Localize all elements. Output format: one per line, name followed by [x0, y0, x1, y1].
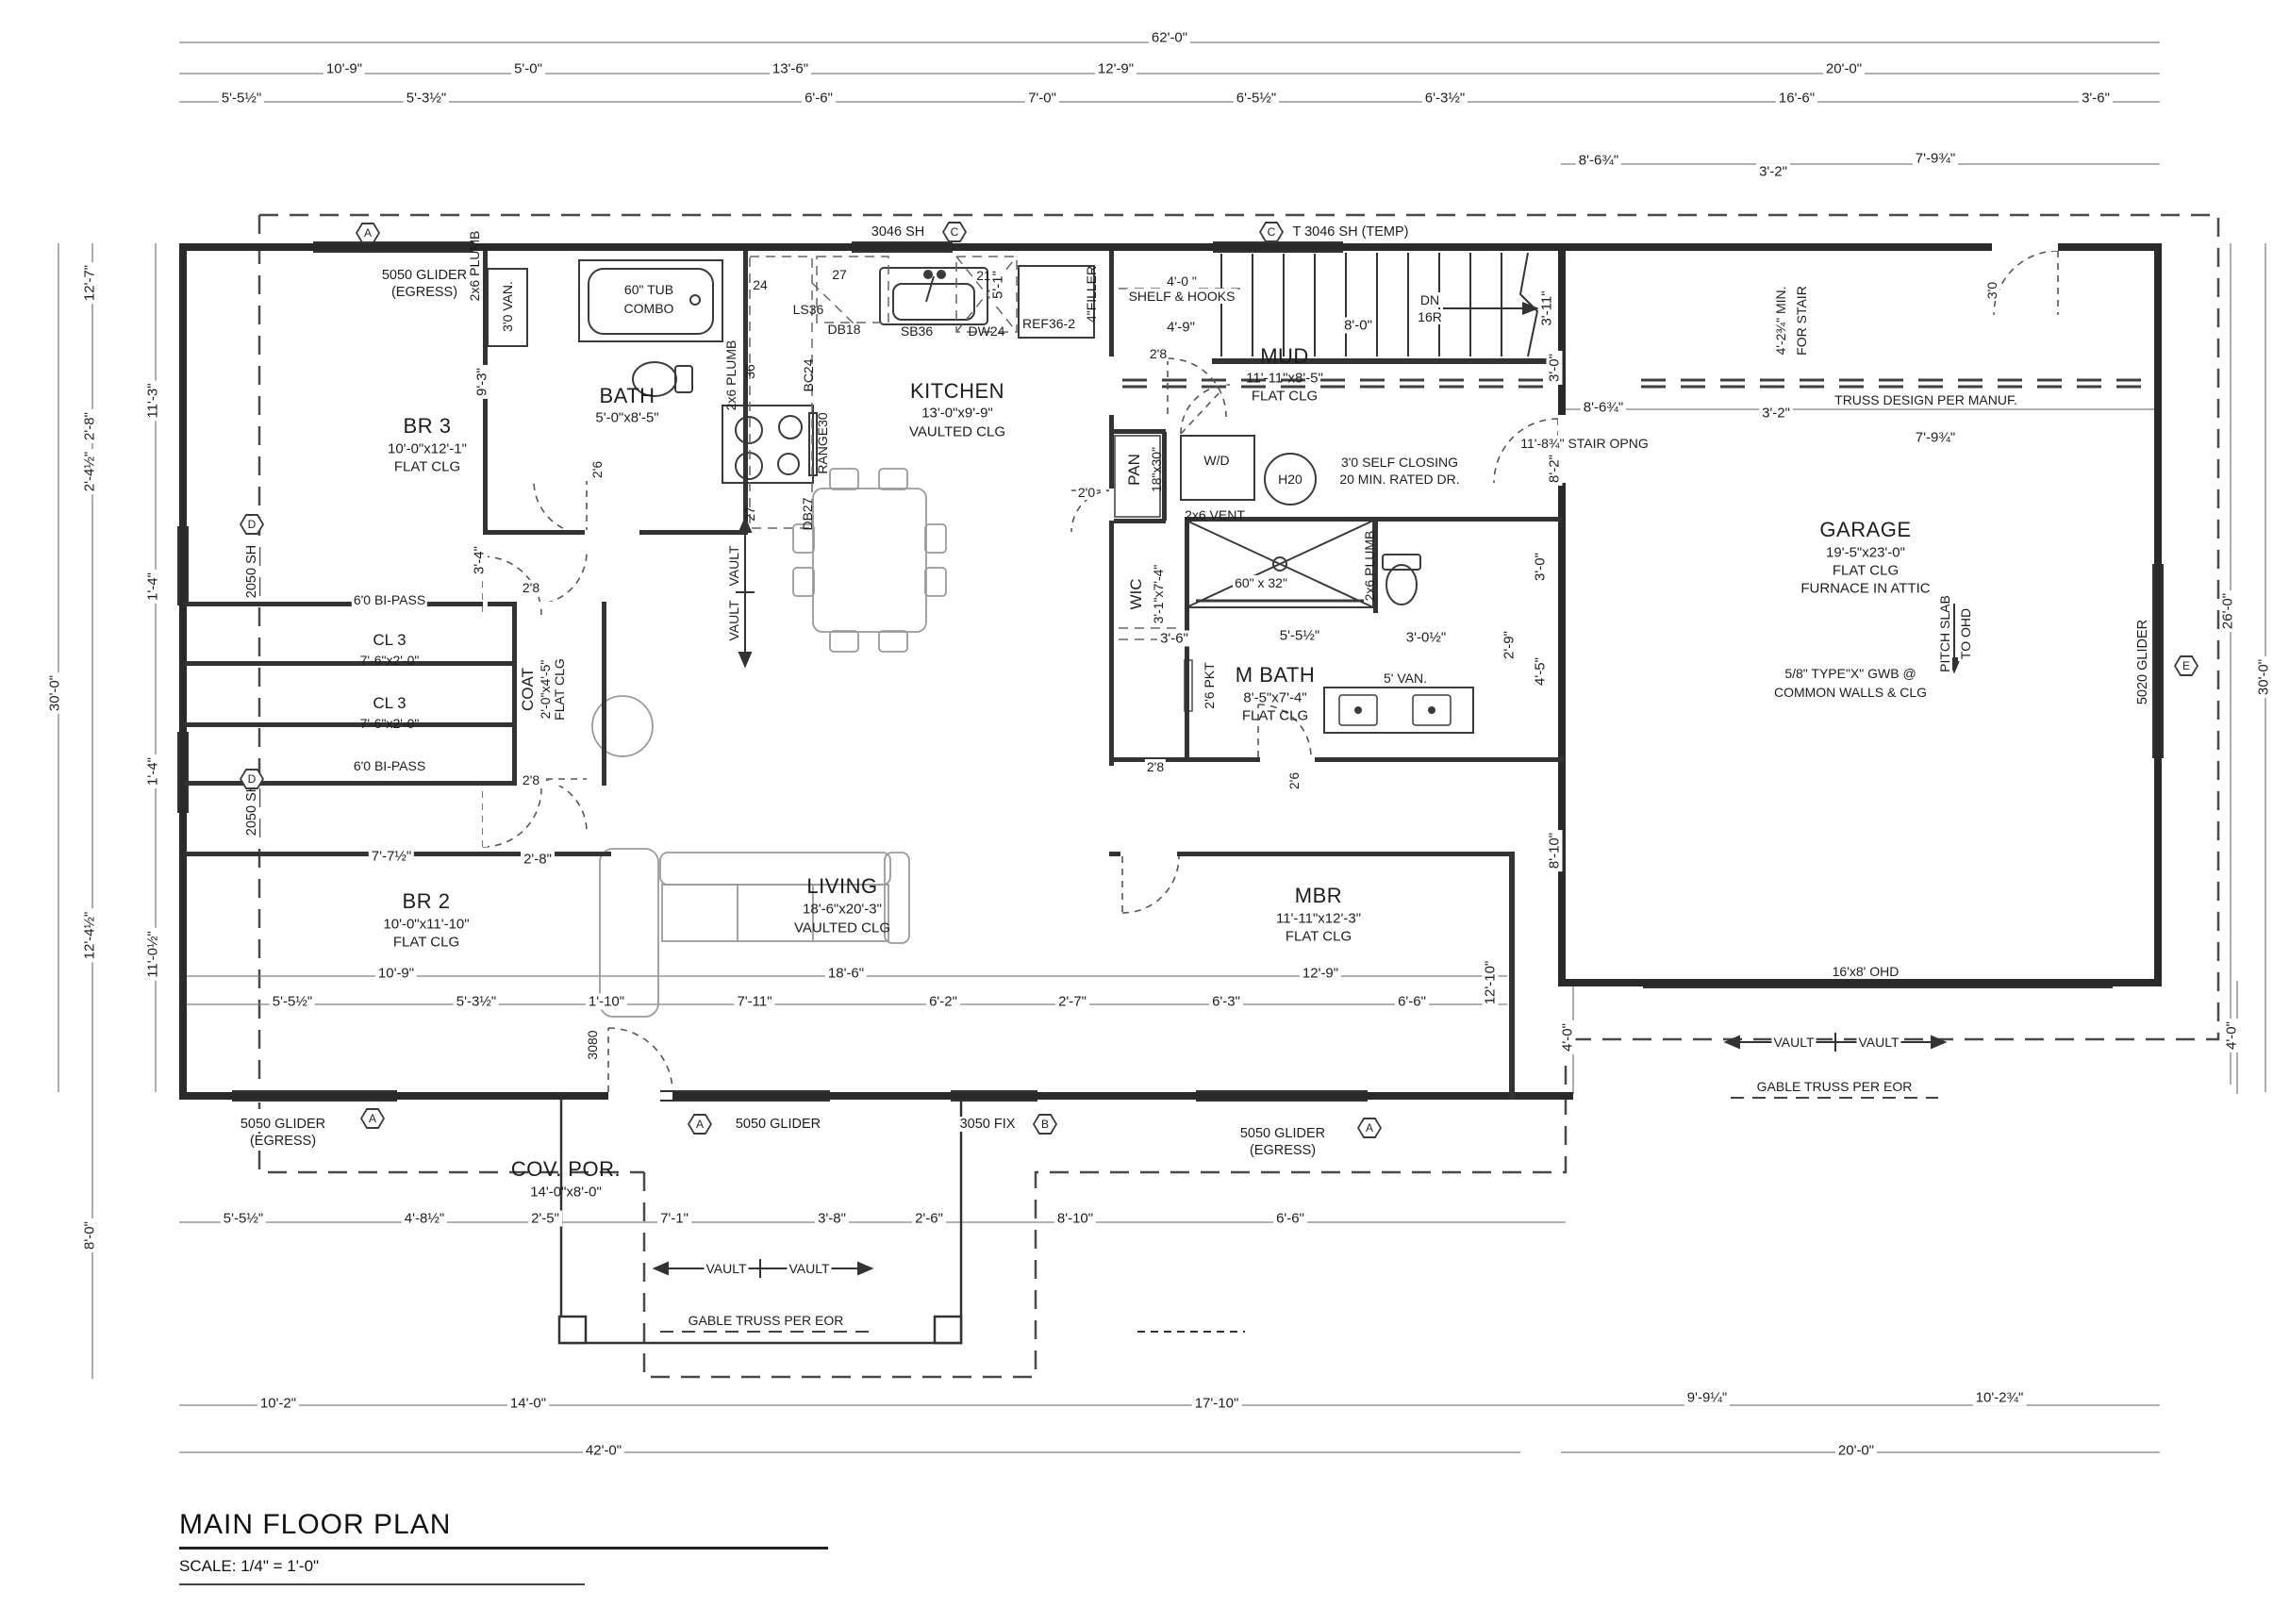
dim: 5'-0"	[511, 61, 545, 77]
wall	[1509, 852, 1515, 1100]
room-name-living: LIVING	[806, 874, 877, 899]
dim: 3'-0"	[1547, 351, 1563, 385]
dim: 5'-5½"	[270, 994, 315, 1010]
dim: 6'-3½"	[1422, 91, 1468, 107]
door-size: 6'0 BI-PASS	[352, 758, 427, 773]
dim: 7'-11"	[734, 994, 774, 1010]
dim: 4'-5"	[1533, 655, 1549, 688]
dim: 8'-6¾"	[1581, 400, 1626, 416]
cabinet-code: DB27	[800, 497, 815, 530]
window-marker-c-icon: C	[942, 222, 967, 242]
floor-plan-sheet: 62'-0"10'-9"5'-0"13'-6"12'-9"20'-0"5'-5½…	[0, 0, 2273, 1624]
dim: 12'-7"	[82, 262, 98, 304]
ceiling-note: VAULTED CLG	[794, 920, 890, 936]
stair-note: DN	[1419, 292, 1441, 307]
room-size: 11'-11"x12'-3"	[1276, 911, 1361, 927]
door-size: 2'0	[1076, 485, 1097, 500]
dim: 6'-6"	[802, 91, 836, 107]
dim: 8'-2"	[1547, 452, 1563, 486]
door-opening	[483, 788, 488, 847]
cabinet-code: DB18	[827, 322, 860, 337]
room-name-br3: BR 3	[404, 414, 452, 439]
note: SHELF & HOOKS	[1127, 289, 1237, 304]
dim: 7'-9¾"	[1913, 430, 1958, 446]
dim: 3'-0½"	[1403, 630, 1449, 646]
title-underline	[179, 1547, 828, 1549]
window-size: 5020 GLIDER	[2135, 618, 2150, 706]
dim: 1'-10"	[586, 994, 627, 1010]
window-label: 5050 GLIDER	[734, 1117, 822, 1132]
door-opening	[534, 781, 589, 786]
window-label: 5050 GLIDER	[239, 1117, 327, 1132]
fixture-label: 5' VAN.	[1382, 671, 1429, 686]
door-opening	[1109, 489, 1114, 521]
dim: 3'-4"	[472, 543, 488, 577]
dim: 4'-8½"	[402, 1211, 447, 1227]
window-marker-a-icon: A	[688, 1114, 712, 1135]
room-name-mud: MUD	[1260, 344, 1309, 369]
cabinet-code: BC24	[801, 358, 816, 391]
window-label: (EGRESS)	[390, 285, 459, 300]
dim: 3'-2"	[1759, 406, 1793, 422]
window-marker-d-icon: D	[240, 769, 264, 789]
fixture-label: 3'0 VAN.	[500, 279, 515, 334]
ceiling-note: FLAT CLG	[552, 658, 567, 721]
room-name-garage: GARAGE	[1819, 518, 1911, 542]
dim: 7'-1"	[657, 1211, 691, 1227]
ceiling-note: VAULTED CLG	[909, 424, 1005, 440]
plumb-note: 2x6 PLUMB	[723, 340, 738, 411]
wall	[512, 602, 517, 786]
window-label: 3046 SH	[870, 224, 926, 240]
window-marker-a-icon: A	[360, 1108, 385, 1129]
dim: 2'-4½"	[82, 449, 98, 494]
scale-underline	[179, 1583, 585, 1585]
window-label: 5050 GLIDER	[380, 268, 469, 283]
drawing-title: MAIN FLOOR PLAN	[179, 1509, 828, 1541]
wall	[1109, 757, 1564, 762]
room-size: 2'-0"x4'-5"	[538, 660, 553, 720]
fixture-label: 60" x 32"	[1233, 575, 1289, 590]
truss-note: GABLE TRUSS PER EOR	[1755, 1079, 1915, 1094]
wall	[1109, 519, 1166, 523]
room-name-wic: WIC	[1127, 578, 1146, 609]
dim: 8'-0"	[1341, 318, 1375, 334]
dim: 26'-0"	[2220, 590, 2236, 632]
wall	[1109, 429, 1166, 434]
wall	[602, 602, 606, 786]
window-size: 2050 SH	[244, 543, 259, 600]
room-name-cl3: CL 3	[373, 694, 406, 713]
vault-label: VAULT	[726, 598, 741, 642]
room-size: 19'-5"x23'-0"	[1826, 545, 1905, 561]
dim: 12'-4½"	[82, 909, 98, 963]
appliance-label: W/D	[1202, 453, 1231, 468]
door-size: 3'0	[1984, 280, 1999, 301]
ceiling-note: FLAT CLG	[393, 935, 459, 951]
dim: 2'-7"	[1055, 994, 1089, 1010]
room-name-cl3: CL 3	[373, 631, 406, 650]
room-size: 10'-0"x12'-1"	[388, 441, 467, 457]
dim: 30'-0"	[2256, 656, 2272, 698]
door-note: 20 MIN. RATED DR.	[1337, 472, 1461, 487]
window-label: 5050 GLIDER	[1238, 1126, 1327, 1141]
dim: 6'-3"	[1209, 994, 1243, 1010]
dim: 7'-9¾"	[1913, 151, 1958, 167]
ceiling-note: FLAT CLG	[1252, 389, 1318, 405]
room-name-pantry: PAN	[1125, 454, 1144, 486]
door-opening	[534, 602, 589, 606]
fixture-label: COMBO	[622, 301, 676, 316]
dim: 5'-3½"	[404, 91, 449, 107]
dim: 3'-2"	[1756, 164, 1790, 180]
room-size: 3'-1"x7'-4"	[1151, 565, 1166, 624]
dim: 2'-5"	[528, 1211, 562, 1227]
ceiling-note: FLAT CLG	[394, 459, 460, 475]
dim: 8'-10"	[1054, 1211, 1096, 1227]
room-name-bath: BATH	[599, 384, 655, 408]
dim: 6'-5½"	[1234, 91, 1279, 107]
dim: 14'-0"	[507, 1396, 549, 1412]
appliance-label: H20	[1276, 472, 1304, 487]
vault-label: VAULT	[787, 1261, 831, 1276]
wall	[184, 602, 512, 606]
wall	[1109, 251, 1114, 313]
window-label: (EGRESS)	[1248, 1143, 1318, 1158]
dim: 10'-2"	[257, 1396, 299, 1412]
door-size: 2'8	[1148, 346, 1169, 361]
wall	[179, 243, 187, 1100]
plumb-note: 2x6 PLUMB	[467, 231, 482, 302]
window-label: (EGRESS)	[248, 1134, 318, 1149]
dim: 5'-1"	[990, 268, 1006, 302]
dim: 3'-6"	[1157, 631, 1191, 647]
dimension-lines	[58, 42, 2265, 1452]
wall	[2154, 243, 2162, 986]
cabinet-code: SB36	[901, 323, 933, 339]
room-size: 7'-6"x2'-0"	[360, 653, 420, 668]
note: 4'-0 "	[1165, 273, 1199, 289]
slab-note: TO OHD	[1958, 606, 1973, 661]
window-marker-e-icon: E	[2174, 655, 2198, 676]
room-size: 8'-5"x7'-4"	[1243, 690, 1306, 706]
vault-label: VAULT	[726, 543, 741, 588]
door-size: 2'8	[521, 580, 541, 595]
dim: 10'-9"	[324, 61, 365, 77]
slab-note: PITCH SLAB	[1937, 593, 1952, 674]
window-label: 3050 FIX	[958, 1117, 1018, 1132]
furniture	[592, 469, 946, 1017]
window-marker-c-icon: C	[1259, 222, 1284, 242]
dim: 9'-3"	[474, 365, 490, 399]
vent-note: 2x6 VENT	[1185, 507, 1245, 522]
dim: 3'-6"	[2079, 91, 2113, 107]
dim: 12'-9"	[1095, 61, 1136, 77]
dim: 11'-0½"	[145, 928, 161, 981]
door-size: 6'0 BI-PASS	[352, 592, 427, 607]
dim: 10'-9"	[375, 966, 417, 982]
dim: 5'-5½"	[219, 91, 264, 107]
window-marker-a-icon: A	[356, 223, 380, 243]
dim: 5'-5½"	[1277, 628, 1322, 644]
cabinet-code: 27	[742, 506, 757, 522]
truss-note: GABLE TRUSS PER EOR	[687, 1313, 846, 1328]
stair-note: FOR STAIR	[1794, 284, 1809, 357]
dim: 42'-0"	[583, 1443, 624, 1459]
ceiling-note: FLAT CLG	[1833, 563, 1899, 579]
dim: 3'-11"	[1539, 288, 1555, 328]
dim: 20'-0"	[1835, 1443, 1877, 1459]
vault-label: VAULT	[1856, 1035, 1900, 1050]
cabinet-code: 21	[976, 268, 991, 283]
dim: 12'-10"	[1483, 958, 1499, 1008]
door-size: 2'6 PKT	[1202, 660, 1217, 710]
title-block: MAIN FLOOR PLAN SCALE: 1/4" = 1'-0"	[179, 1509, 828, 1585]
dim: 11'-3"	[145, 380, 161, 421]
door-opening	[1992, 243, 2058, 251]
dim: 2'-8"	[82, 409, 98, 443]
dim: 8'-6¾"	[1576, 153, 1621, 169]
room-name-br2: BR 2	[403, 889, 451, 914]
door-size: 2'8	[1145, 759, 1166, 774]
door-opening	[1260, 757, 1315, 762]
dim: 8'-0"	[82, 1218, 98, 1252]
door-size: 16'x8' OHD	[1831, 964, 1901, 979]
room-size: 10'-0"x11'-10"	[383, 917, 469, 933]
dim: 9'-9¼"	[1684, 1390, 1730, 1406]
dim: 17'-10"	[1192, 1396, 1242, 1412]
dim: 18'-6"	[825, 966, 867, 982]
dim: 16'-6"	[1776, 91, 1817, 107]
room-name-mbath: M BATH	[1236, 663, 1315, 688]
window-marker-a-icon: A	[1357, 1118, 1382, 1138]
room-name-porch: COV. POR.	[511, 1157, 621, 1182]
vault-label: VAULT	[704, 1261, 748, 1276]
door-opening	[585, 530, 639, 535]
door-opening	[1120, 852, 1177, 856]
dim: 6'-6"	[1395, 994, 1429, 1010]
door-size: 2'6	[1286, 771, 1302, 791]
room-size: 14'-0"x8'-0"	[530, 1185, 602, 1201]
dim: 1'-4"	[145, 754, 161, 788]
room-size: 18'-6"x20'-3"	[803, 902, 882, 918]
wall	[184, 722, 512, 727]
room-size: 5'-0"x8'-5"	[595, 410, 658, 426]
dim: 3'-8"	[815, 1211, 849, 1227]
window-marker-d-icon: D	[240, 514, 264, 535]
door-note: 3'0 SELF CLOSING	[1339, 455, 1460, 470]
wall	[184, 781, 512, 786]
dim-overall-top: 62'-0"	[1149, 30, 1190, 46]
cabinet-code: 36	[742, 364, 757, 379]
wall	[184, 661, 512, 666]
dim: 10'-2¾"	[1973, 1390, 2027, 1406]
wall	[1558, 979, 2162, 986]
appliance-label: RANGE30	[815, 412, 830, 473]
dim: 6'-2"	[926, 994, 960, 1010]
wall	[179, 1092, 1573, 1100]
dim: 5'-3½"	[454, 994, 499, 1010]
cabinet-code: 24	[753, 277, 768, 292]
dim: 2'-9"	[1502, 628, 1518, 662]
cabinet-code: 27	[832, 267, 847, 282]
room-size: 18"x30"	[1149, 447, 1164, 492]
dim: 6'-6"	[1273, 1211, 1307, 1227]
room-size: 13'-0"x9'-9"	[921, 406, 993, 422]
plumb-note: 2x6 PLUMB	[1362, 531, 1377, 602]
truss-note: TRUSS DESIGN PER MANUF.	[1833, 392, 2019, 407]
dim: 12'-9"	[1300, 966, 1341, 982]
dim: 4'-9"	[1164, 320, 1198, 336]
dim: 4'-0"	[1560, 1020, 1576, 1054]
room-size: 7'-6"x2'-0"	[360, 716, 420, 731]
window-label: T 3046 SH (TEMP)	[1290, 224, 1410, 240]
drawing-scale: SCALE: 1/4" = 1'-0"	[179, 1557, 828, 1576]
dim: 3'-0"	[1533, 550, 1549, 584]
cabinet-code: LS36	[793, 302, 824, 317]
dim: 2'-8"	[521, 852, 555, 868]
stair-treads	[1221, 253, 1539, 356]
note: FURNACE IN ATTIC	[1800, 581, 1930, 597]
porch	[559, 1100, 961, 1343]
dim: 7'-7½"	[369, 849, 414, 865]
window-marker-b-icon: B	[1033, 1114, 1057, 1135]
gwb-note: 5/8" TYPE"X" GWB @	[1783, 666, 1917, 681]
dim: 1'-4"	[145, 570, 161, 604]
ceiling-note: FLAT CLG	[1242, 708, 1308, 724]
dim: 8'-10"	[1547, 830, 1563, 871]
gwb-note: COMMON WALLS & CLG	[1772, 685, 1929, 700]
cabinet-code: DW24	[969, 323, 1005, 339]
dim: 4'-0"	[2224, 1019, 2240, 1052]
dim: 30'-0"	[47, 672, 63, 714]
door-opening	[608, 1092, 672, 1100]
wall	[743, 251, 748, 534]
ceiling-note: FLAT CLG	[1286, 929, 1352, 945]
stair-note: 4'-2¾" MIN.	[1773, 285, 1788, 357]
room-size: 11'-11"x8'-5"	[1246, 371, 1323, 387]
fixture-label: 60" TUB	[622, 282, 675, 297]
dim: 7'-0"	[1025, 91, 1059, 107]
roof-overhang-dashed	[259, 215, 2218, 1377]
dim: 13'-6"	[770, 61, 811, 77]
door-size: 2'8	[521, 772, 541, 787]
dim: 20'-0"	[1823, 61, 1865, 77]
room-name-coat: COAT	[519, 668, 538, 711]
stair-note: 16R	[1416, 309, 1444, 324]
vault-label: VAULT	[1771, 1035, 1816, 1050]
door-opening	[1109, 356, 1114, 415]
room-name-mbr: MBR	[1295, 884, 1342, 908]
door-size: 3080	[585, 1028, 600, 1061]
cabinet-code: 4"FILLER	[1084, 266, 1099, 323]
door-size: 2'6	[589, 459, 605, 480]
dim: 2'-6"	[912, 1211, 946, 1227]
stair-opening-dim: 11'-8¾" STAIR OPNG	[1518, 436, 1651, 451]
appliance-label: REF36-2	[1022, 316, 1075, 331]
room-name-kitchen: KITCHEN	[910, 379, 1004, 404]
dim: 5'-5½"	[221, 1211, 266, 1227]
